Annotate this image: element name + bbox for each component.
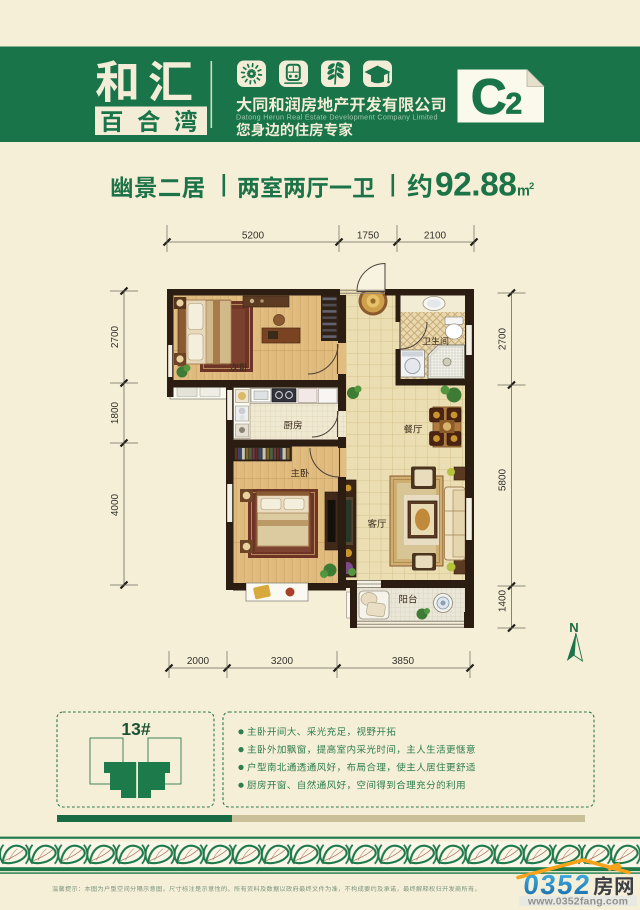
svg-text:www.0352fang.com: www.0352fang.com <box>527 896 628 908</box>
svg-text:Datong Herun Real Estate Devel: Datong Herun Real Estate Development Com… <box>236 113 438 122</box>
svg-text:1400: 1400 <box>498 589 509 612</box>
svg-text:5800: 5800 <box>498 468 509 491</box>
svg-text:2100: 2100 <box>424 231 447 242</box>
svg-text:C: C <box>471 71 506 125</box>
svg-text:2700: 2700 <box>498 327 509 350</box>
svg-text:2000: 2000 <box>187 656 210 667</box>
svg-text:N: N <box>569 620 578 635</box>
svg-text:1750: 1750 <box>357 231 380 242</box>
svg-text:1800: 1800 <box>110 401 121 424</box>
svg-text:4000: 4000 <box>110 493 121 516</box>
svg-text:92.88: 92.88 <box>435 167 516 204</box>
svg-text:3850: 3850 <box>392 656 415 667</box>
svg-text:13#: 13# <box>121 719 150 739</box>
svg-text:3200: 3200 <box>271 656 294 667</box>
svg-text:m: m <box>517 184 530 200</box>
svg-text:2: 2 <box>506 88 523 121</box>
svg-text:5200: 5200 <box>242 231 265 242</box>
svg-text:2700: 2700 <box>110 325 121 348</box>
svg-text:2: 2 <box>529 181 534 192</box>
